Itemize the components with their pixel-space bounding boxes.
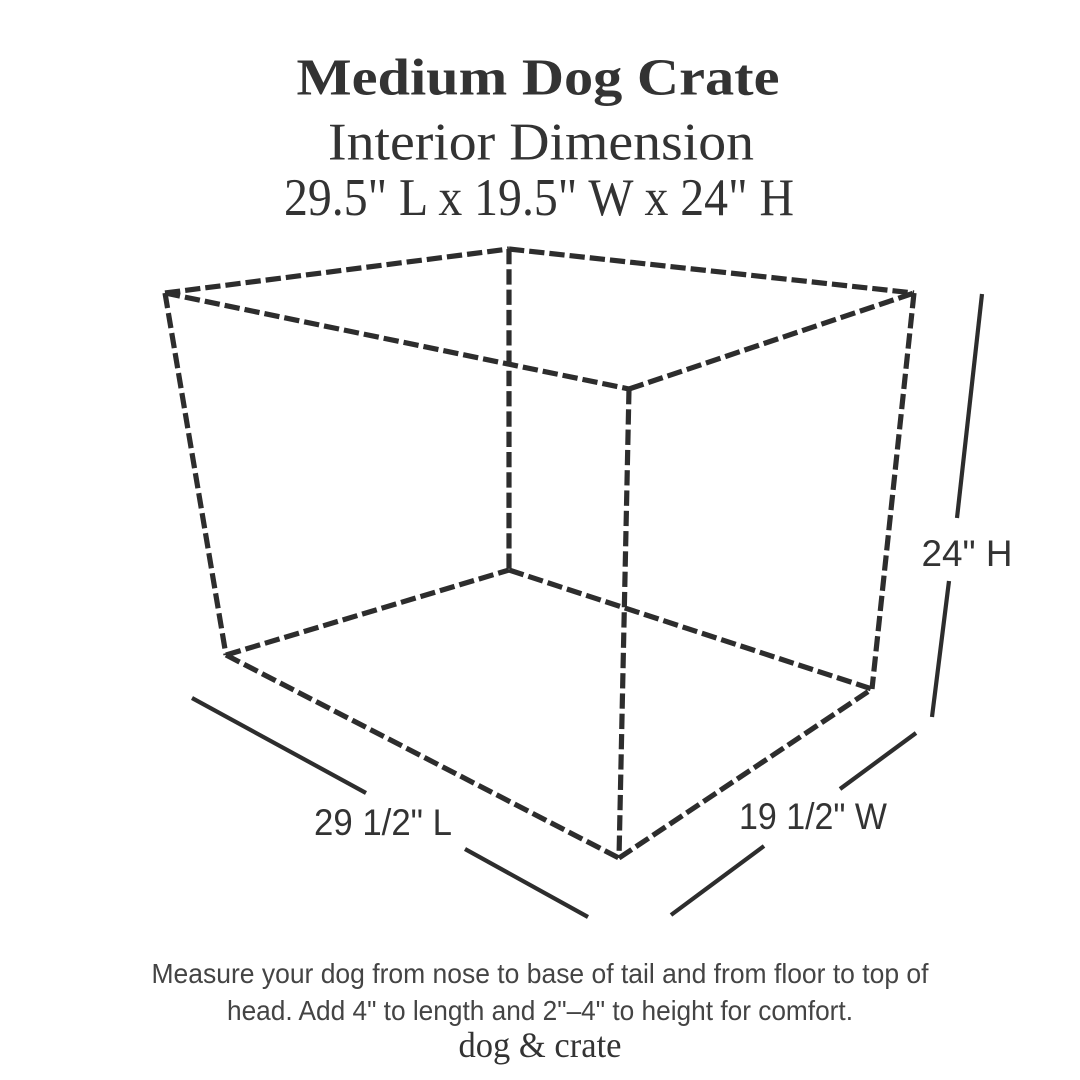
svg-text:29.5" L x 19.5" W x 24" H: 29.5" L x 19.5" W x 24" H (284, 169, 794, 227)
svg-text:24" H: 24" H (922, 533, 1013, 574)
svg-text:Interior Dimension: Interior Dimension (328, 114, 754, 172)
svg-text:29 1/2" L: 29 1/2" L (314, 802, 452, 843)
svg-text:head. Add 4" to length and 2"–: head. Add 4" to length and 2"–4" to heig… (227, 995, 853, 1026)
svg-text:19 1/2" W: 19 1/2" W (739, 796, 887, 837)
svg-text:Measure your dog from nose to: Measure your dog from nose to base of ta… (152, 958, 929, 989)
svg-text:dog & crate: dog & crate (459, 1025, 622, 1065)
svg-text:Medium Dog Crate: Medium Dog Crate (297, 50, 780, 107)
